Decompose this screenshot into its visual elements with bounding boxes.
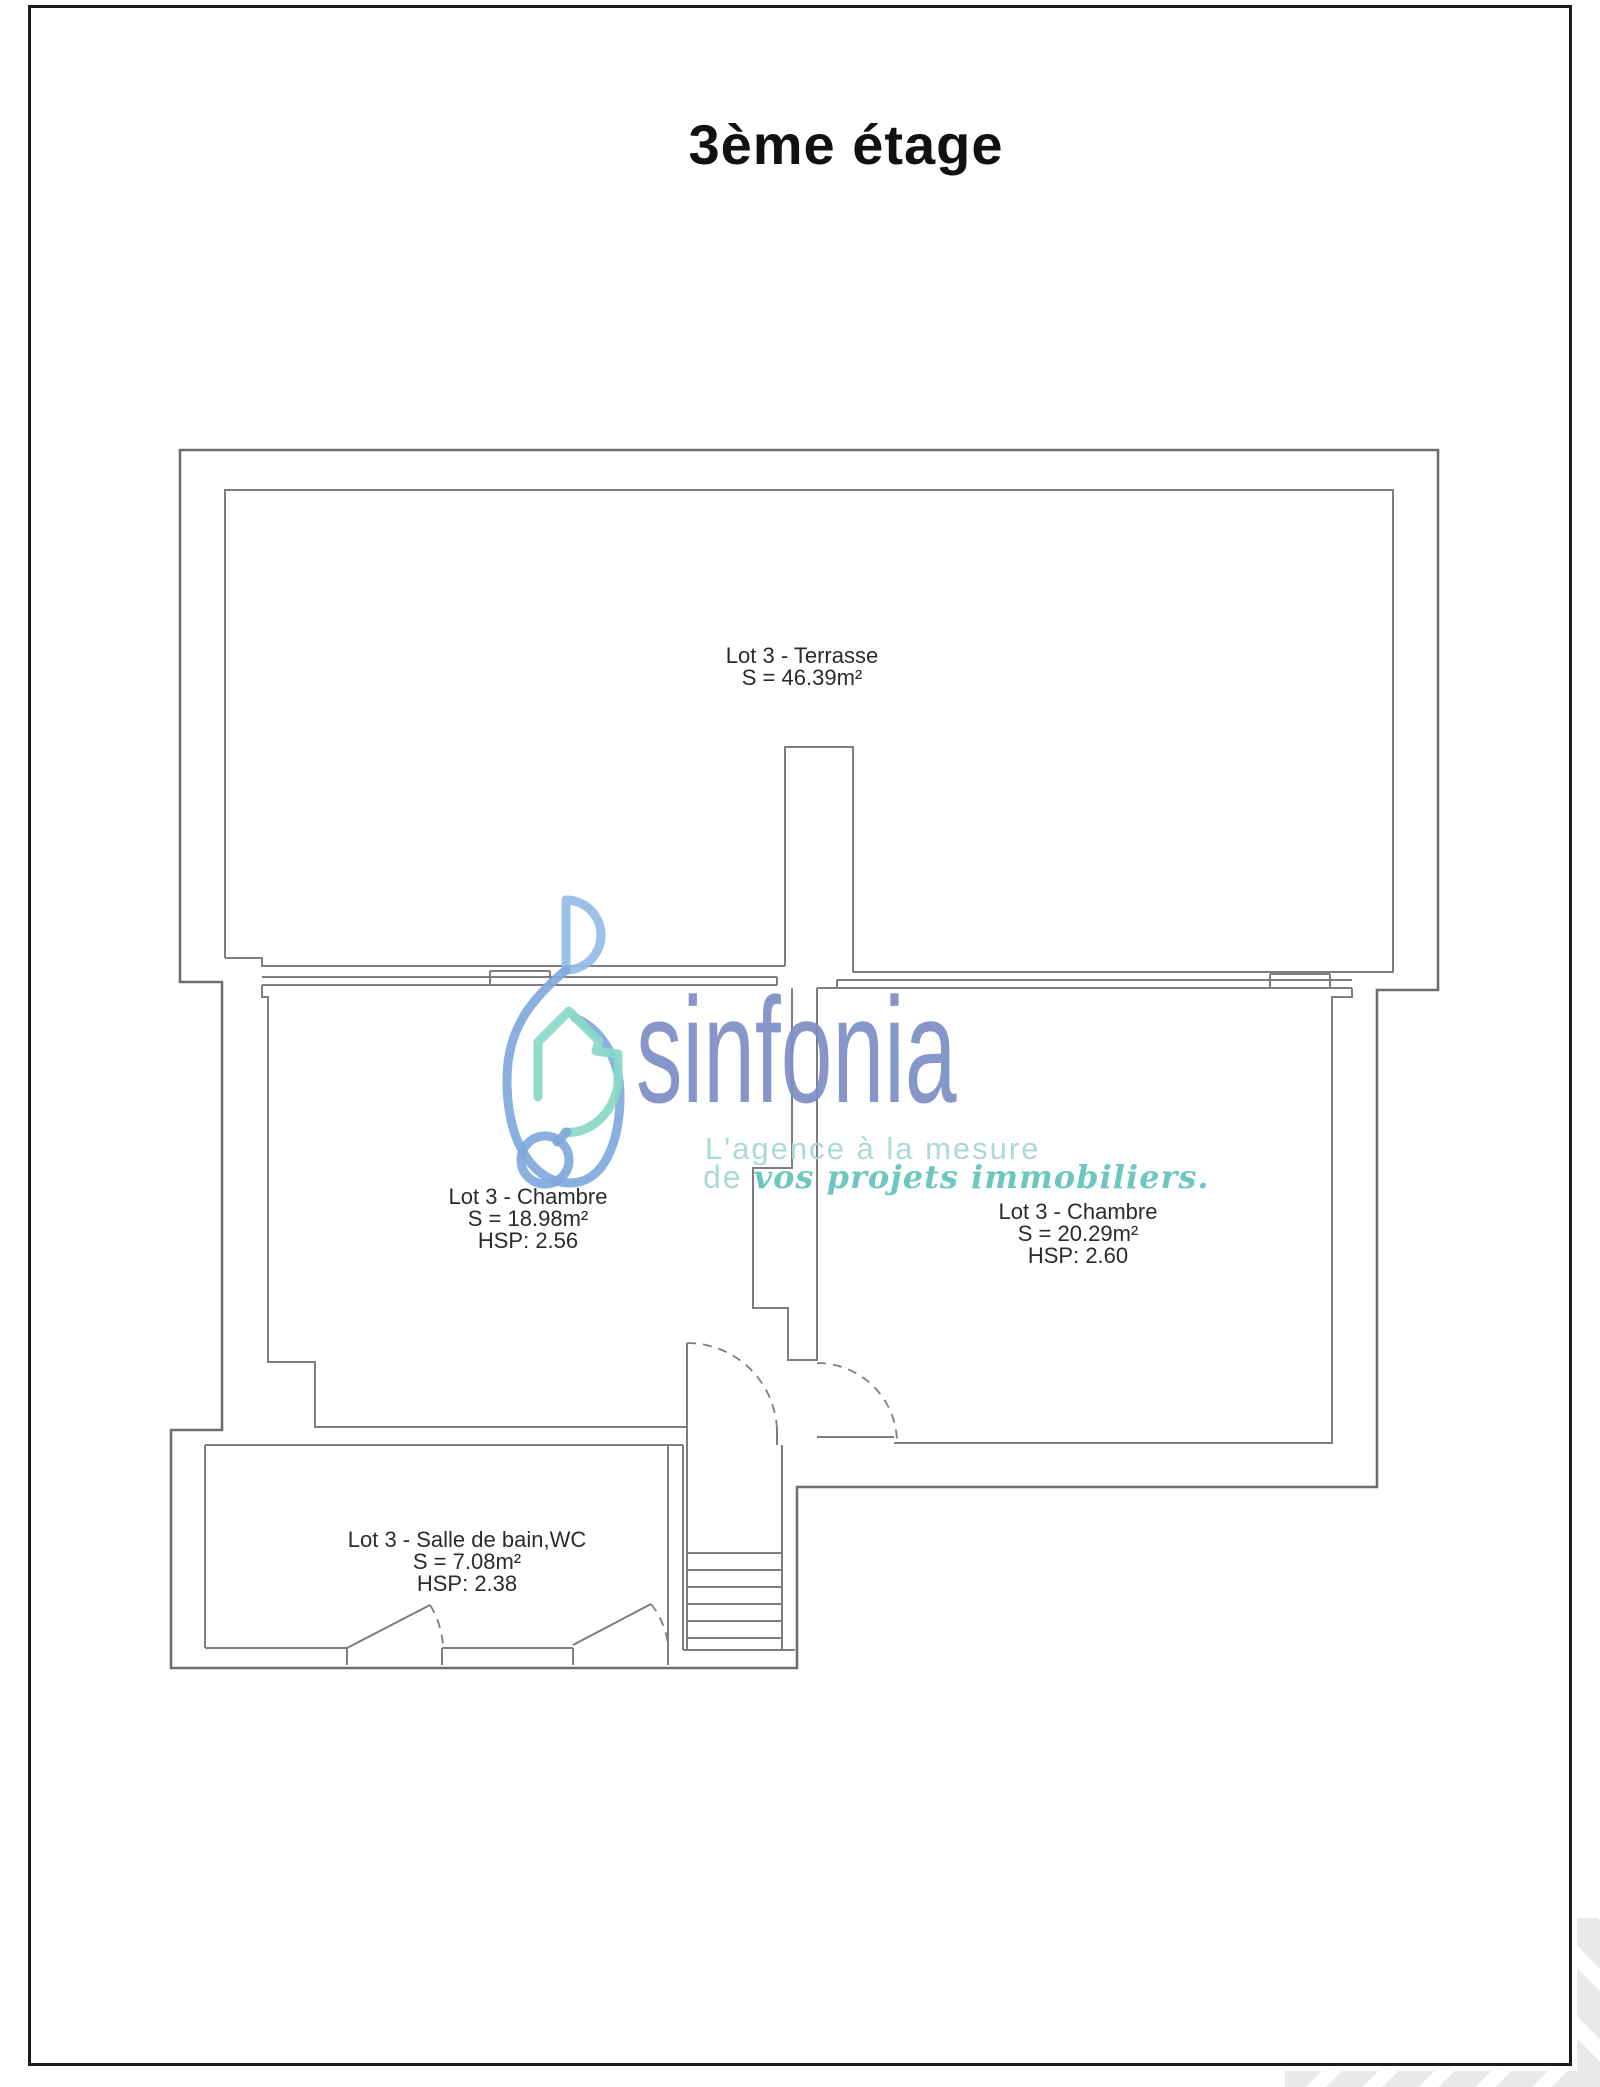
sinfonia-logo-icon: [507, 900, 620, 1184]
bathroom-window-leaf-2: [573, 1604, 651, 1645]
tagline-de: de: [703, 1159, 753, 1195]
room-name: Lot 3 - Chambre: [999, 1201, 1158, 1223]
page-corner-decoration-right: [1577, 1918, 1600, 2087]
bathroom-window-leaf-1: [347, 1605, 430, 1648]
room-name: Lot 3 - Terrasse: [726, 645, 878, 667]
logo-house: [538, 1011, 618, 1132]
room-label-chambre-left: Lot 3 - Chambre S = 18.98m² HSP: 2.56: [449, 1186, 608, 1252]
room-hsp: HSP: 2.38: [348, 1573, 586, 1595]
terrace-inner-bottom-wall: [225, 958, 785, 966]
room-name: Lot 3 - Salle de bain,WC: [348, 1529, 586, 1551]
page-corner-decoration-bottom: [1285, 2071, 1600, 2087]
room-area: S = 18.98m²: [449, 1208, 608, 1230]
room-hsp: HSP: 2.60: [999, 1245, 1158, 1267]
sinfonia-wordmark: sinfonia: [636, 975, 957, 1125]
sinfonia-tagline-line2: de vos projets immobiliers.: [703, 1161, 1209, 1193]
room-area: S = 20.29m²: [999, 1223, 1158, 1245]
tagline-script: vos projets immobiliers.: [753, 1158, 1209, 1196]
hallway-walls: [777, 1427, 894, 1650]
bathroom-window-arc-1: [430, 1605, 443, 1647]
hall-door-arc-left: [687, 1343, 777, 1433]
bathroom-window-arc-2: [651, 1604, 668, 1645]
shaft-wall: [785, 747, 853, 972]
room-name: Lot 3 - Chambre: [449, 1186, 608, 1208]
logo-top-loop: [566, 900, 601, 970]
room-area: S = 46.39m²: [726, 667, 878, 689]
room-hsp: HSP: 2.56: [449, 1230, 608, 1252]
room-label-salle-de-bain: Lot 3 - Salle de bain,WC S = 7.08m² HSP:…: [348, 1529, 586, 1595]
room-label-chambre-right: Lot 3 - Chambre S = 20.29m² HSP: 2.60: [999, 1201, 1158, 1267]
hall-door-arc-right: [817, 1363, 897, 1443]
door-swings: [430, 1343, 897, 1647]
room-label-terrasse: Lot 3 - Terrasse S = 46.39m²: [726, 645, 878, 689]
stair-treads: [687, 1553, 782, 1638]
room-area: S = 7.08m²: [348, 1551, 586, 1573]
casement-window-leaves: [347, 1604, 651, 1648]
terrace-inner-wall: [225, 490, 1393, 972]
